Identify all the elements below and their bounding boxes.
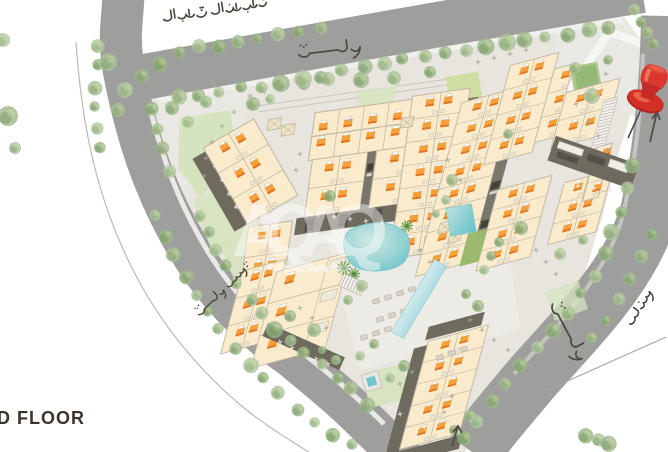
svg-text:AQAQ: AQAQ [232, 189, 388, 272]
svg-text:D FLOOR: D FLOOR [0, 408, 85, 428]
